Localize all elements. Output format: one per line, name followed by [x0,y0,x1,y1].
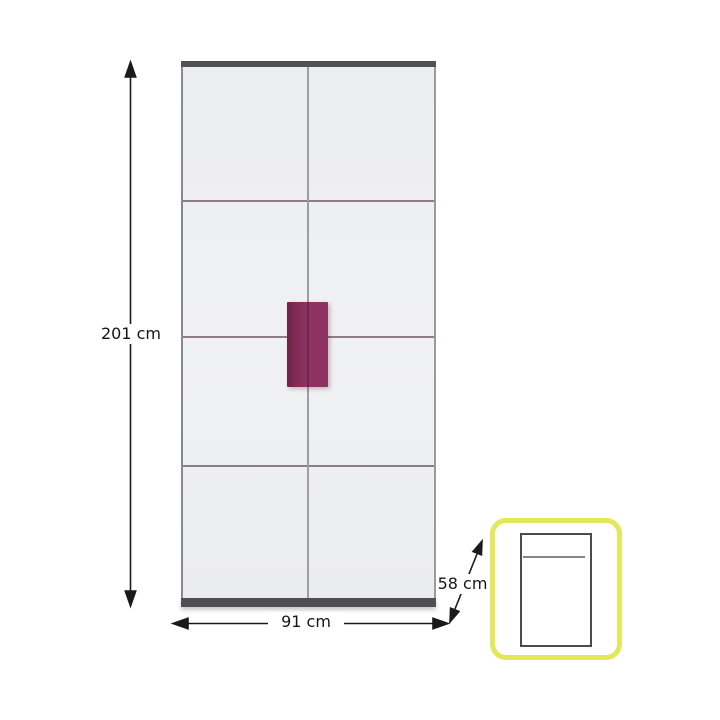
door-handle [287,302,328,387]
depth-dimension-label: 58 cm [436,574,489,594]
width-dimension-label: 91 cm [268,612,344,632]
height-dimension-label: 201 cm [93,324,169,344]
wardrobe-front-view [181,61,436,607]
wardrobe-top-view [520,533,592,647]
top-view-door-line [523,556,585,558]
wardrobe-top-edge [181,61,436,67]
handle-center-seam [307,302,309,387]
depth-inset-panel [490,518,622,660]
wardrobe-bottom-plinth [181,598,436,607]
product-dimension-diagram: 201 cm 91 cm 58 cm [0,0,720,720]
